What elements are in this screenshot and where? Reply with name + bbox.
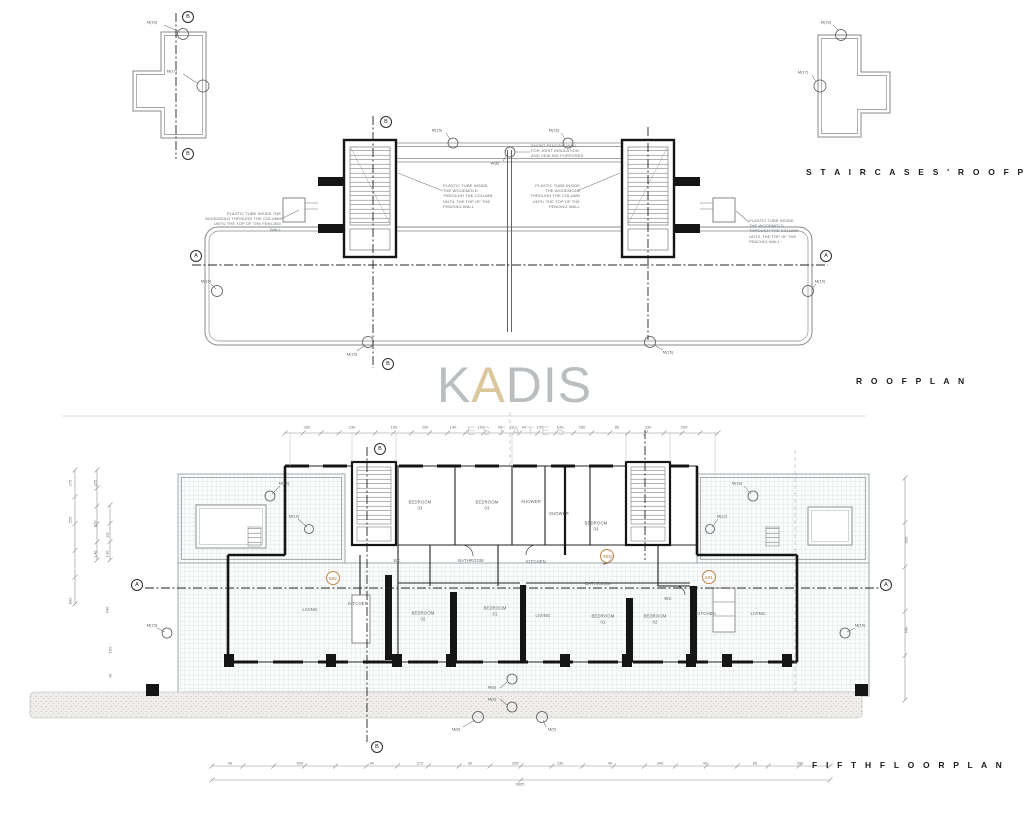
- skylight-right: [808, 507, 852, 545]
- note-plastic-tube-left: PLASTIC TUBE INSIDE THE WOODMOLD THROUGH…: [203, 211, 281, 232]
- watermark-part1: K: [437, 357, 471, 413]
- watermark-letter-a: A: [471, 357, 505, 413]
- kadis-watermark: KADIS: [437, 356, 592, 414]
- fifth-floor-plan: [30, 412, 880, 742]
- note-plastic-tube-center-right: PLASTIC TUBE INSIDE THE WOODMOLD THROUGH…: [530, 183, 580, 209]
- fifth-stair-tower-left: [352, 462, 396, 545]
- staircase-detail-left: [133, 13, 209, 159]
- roof-plan: [192, 116, 828, 368]
- title-roof-plan: R O O F P L A N: [856, 376, 967, 386]
- fifth-stair-tower-right: [626, 462, 670, 545]
- title-staircases-roof-plan: S T A I R C A S E S ' R O O F P L A N: [806, 167, 1024, 177]
- estates-watermark: ESTATES: [467, 424, 572, 438]
- architectural-sheet: BBBBAAAABB M(16)M(17)M(16)M(17)M(15)M(15…: [0, 0, 1024, 815]
- roof-stair-tower-left: [344, 140, 396, 257]
- title-fifth-floor-plan: F I F T H F L O O R P L A N: [812, 760, 1005, 770]
- note-plastic-tube-center-left: PLASTIC TUBE INSIDE THE WOODMOLD THROUGH…: [443, 183, 493, 209]
- note-plastic-tube-right: PLASTIC TUBE INSIDE THE WOODMOLD THROUGH…: [749, 218, 799, 244]
- note-short-fencing-wall: SHORT FENCING WALL FOR JOINT INSULATION …: [531, 143, 585, 159]
- staircase-detail-right: [812, 25, 890, 137]
- watermark-part3: DIS: [506, 357, 592, 413]
